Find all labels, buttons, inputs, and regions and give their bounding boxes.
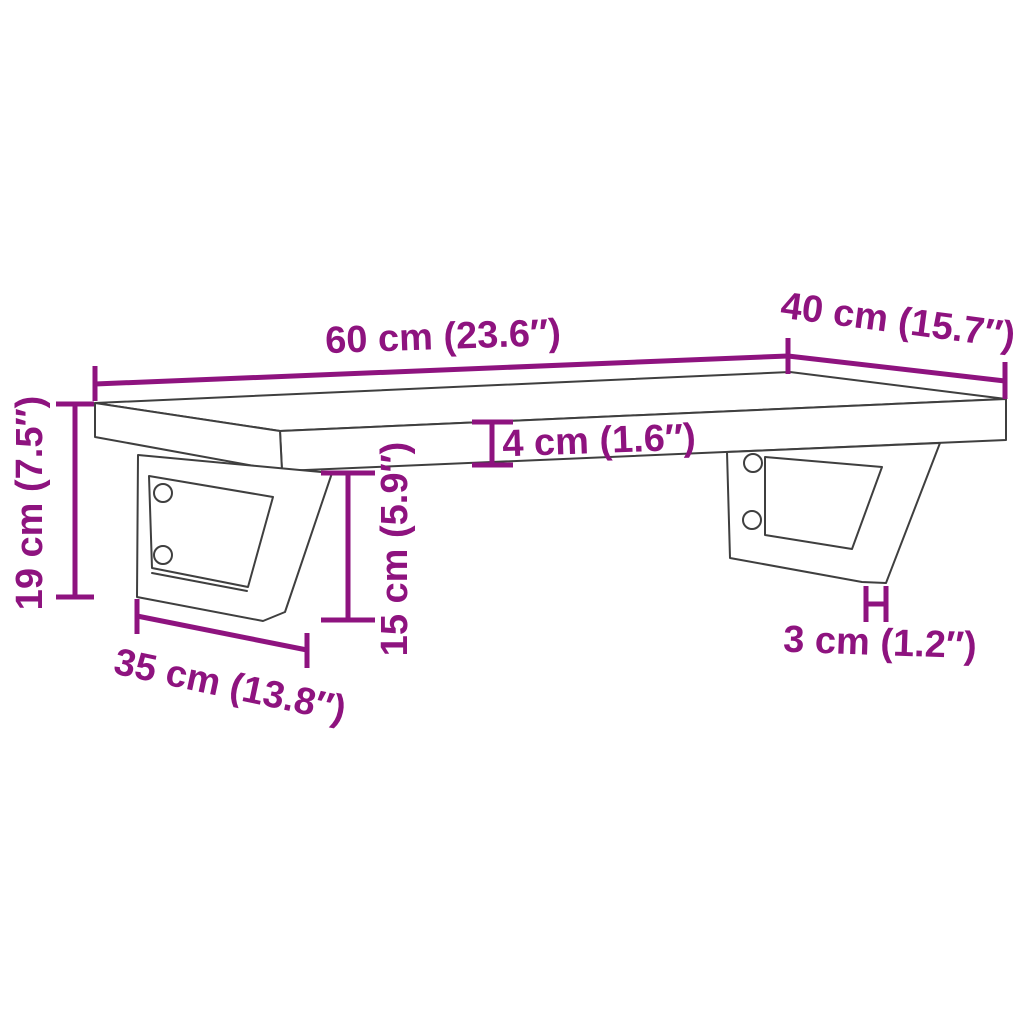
dimension-bracket-drop: 15 cm (5.9″) bbox=[321, 442, 416, 657]
screw-hole bbox=[744, 454, 762, 472]
screw-hole bbox=[154, 546, 172, 564]
dimension-total-height: 19 cm (7.5″) bbox=[9, 396, 94, 611]
dimension-bracket-depth: 35 cm (13.8″) bbox=[110, 599, 349, 731]
dimension-label-foot-width: 3 cm (1.2″) bbox=[783, 619, 978, 668]
dimension-board-thickness: 4 cm (1.6″) bbox=[472, 417, 696, 466]
dimension-label-bracket-depth: 35 cm (13.8″) bbox=[110, 641, 349, 731]
dimension-line-35cm bbox=[137, 616, 307, 650]
right-bracket bbox=[727, 443, 940, 583]
dimension-label-board-thickness: 4 cm (1.6″) bbox=[502, 417, 697, 466]
dimension-diagram: 60 cm (23.6″) 40 cm (15.7″) 4 cm (1.6″) … bbox=[0, 0, 1024, 1024]
diagram-canvas: 60 cm (23.6″) 40 cm (15.7″) 4 cm (1.6″) … bbox=[0, 0, 1024, 1024]
dimension-label-board-width: 60 cm (23.6″) bbox=[324, 312, 561, 362]
dimension-label-total-height: 19 cm (7.5″) bbox=[9, 396, 51, 611]
dimension-label-bracket-drop: 15 cm (5.9″) bbox=[374, 442, 416, 657]
screw-hole bbox=[743, 511, 761, 529]
dimension-foot-width: 3 cm (1.2″) bbox=[783, 586, 978, 667]
left-bracket bbox=[137, 455, 332, 621]
dimension-label-board-depth: 40 cm (15.7″) bbox=[778, 285, 1017, 357]
screw-hole bbox=[154, 484, 172, 502]
